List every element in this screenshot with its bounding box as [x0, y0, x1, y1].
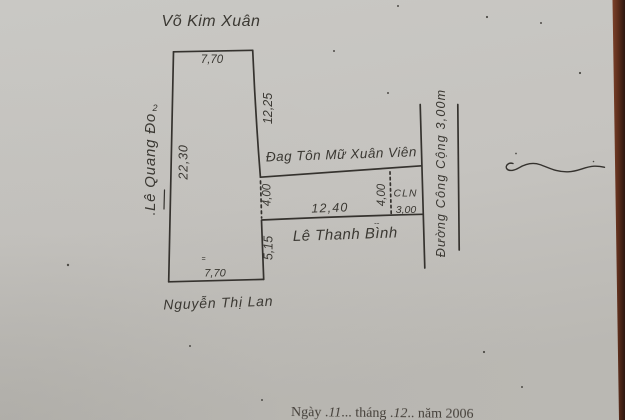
svg-text:CLN: CLN: [393, 188, 417, 200]
svg-text:Ngày .11... tháng .12.. năm 20: Ngày .11... tháng .12.. năm 2006: [291, 405, 474, 420]
svg-text:22,30: 22,30: [177, 144, 191, 180]
svg-text:4,00: 4,00: [262, 183, 274, 206]
svg-text:7,70: 7,70: [201, 54, 224, 66]
svg-text:--: --: [374, 219, 380, 228]
svg-text:Đường Công Cộng 3,00m: Đường Công Cộng 3,00m: [434, 89, 448, 258]
svg-text:7,70: 7,70: [204, 268, 226, 280]
svg-text:12,40: 12,40: [311, 200, 349, 215]
svg-text:2: 2: [152, 103, 158, 113]
svg-text:5,15: 5,15: [262, 236, 276, 260]
svg-text:Lê Quang Đo: Lê Quang Đo: [142, 113, 159, 211]
svg-text:3,00: 3,00: [396, 204, 417, 216]
svg-text:4,00: 4,00: [376, 183, 388, 206]
svg-text:12,25: 12,25: [261, 93, 275, 124]
svg-text:=: =: [202, 256, 206, 263]
svg-text:Võ Kim Xuân: Võ Kim Xuân: [162, 13, 261, 30]
